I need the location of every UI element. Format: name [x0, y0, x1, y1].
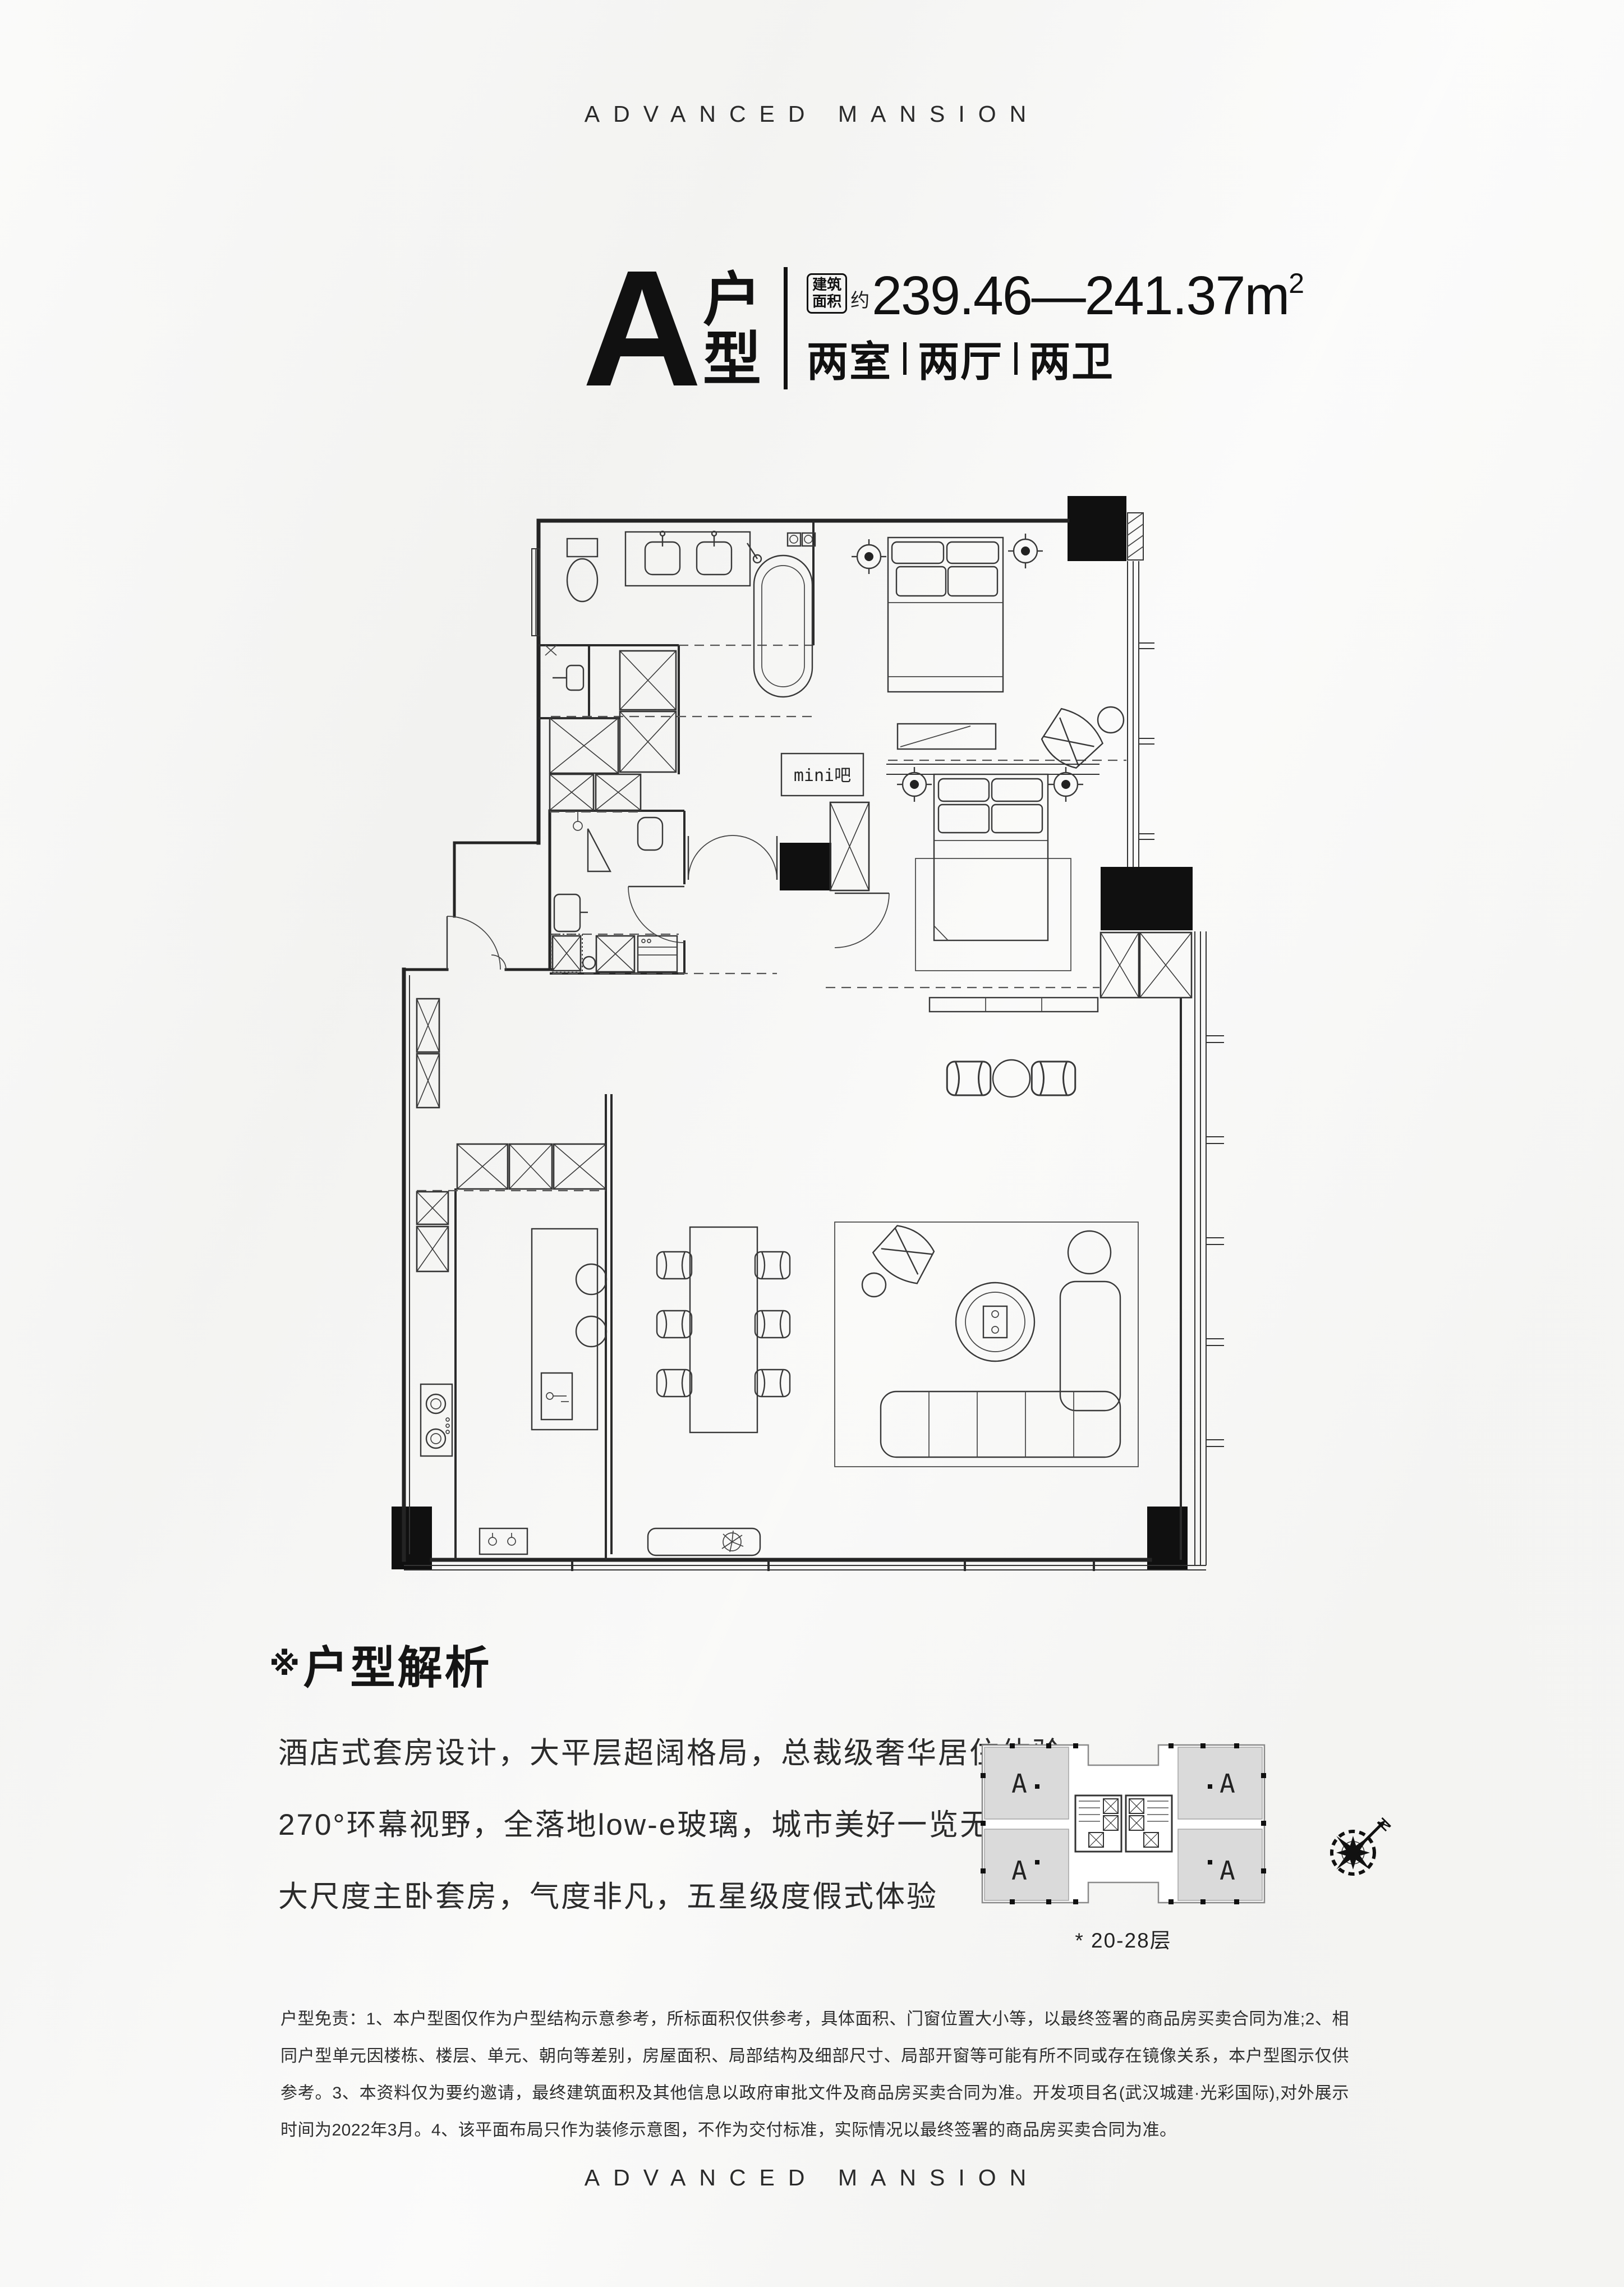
kitchen	[421, 1229, 606, 1554]
area-badge: 建筑 面积	[807, 273, 847, 314]
sofa	[881, 1282, 1120, 1457]
tea-table-set	[947, 1060, 1075, 1097]
keyplan-caption: * 20-28层	[979, 1923, 1268, 1954]
master-bedroom	[886, 764, 1099, 1097]
floor-plan: mini吧	[365, 477, 1262, 1571]
suite-double-door	[688, 835, 777, 880]
unit-word-char2: 型	[703, 330, 761, 389]
analysis-heading-text: 户型解析	[303, 1632, 491, 1697]
spec-rooms: 两室	[807, 328, 892, 388]
keyplan-unit-label: A	[1011, 1856, 1027, 1886]
disclaimer-text: 户型免责：1、本户型图仅作为户型结构示意参考，所标面积仅供参考，具体面积、门窗位…	[280, 2001, 1349, 2149]
compass-north-label: N	[1374, 1815, 1396, 1836]
side-table	[862, 1273, 886, 1297]
area-badge-line2: 面积	[812, 293, 841, 310]
compass-icon: N	[1324, 1812, 1397, 1885]
keyplan-unit-label: A	[1220, 1856, 1235, 1886]
area-approx: 约	[850, 285, 869, 313]
spec-baths: 两卫	[1029, 328, 1114, 388]
bathtub	[747, 543, 812, 697]
pouf	[1068, 1231, 1111, 1274]
keyplan: A A A A	[979, 1739, 1268, 1911]
wall-switch-boxes	[788, 533, 815, 546]
bathroom2	[551, 811, 677, 972]
interior-walls	[456, 521, 813, 1560]
armchair	[869, 1219, 941, 1289]
analysis-lines: 酒店式套房设计，大平层超阔格局，总裁级奢华居住体验 270°环幕视野，全落地lo…	[278, 1729, 1064, 1945]
unit-word-char1: 户	[703, 270, 761, 330]
bench	[898, 724, 996, 749]
title-block: A 户 型 建筑 面积 约 239.46—241.37m2 两室 两厅 两卫	[582, 264, 1303, 393]
island	[532, 1229, 606, 1430]
toilet	[567, 539, 597, 601]
entry-door	[447, 916, 506, 970]
analysis-line: 270°环幕视野，全落地low-e玻璃，城市美好一览无余	[278, 1801, 1064, 1844]
hatch-pane	[1128, 513, 1143, 560]
title-divider	[784, 267, 788, 389]
master-door	[835, 893, 889, 948]
keyplan-unit-label: A	[1220, 1769, 1235, 1799]
reference-mark-icon: ※	[269, 1646, 300, 1683]
minibar: mini吧	[781, 754, 863, 796]
master-bed	[934, 774, 1048, 940]
minibar-label: mini吧	[794, 766, 851, 786]
unit-word: 户 型	[703, 270, 761, 389]
columns	[392, 496, 1193, 1569]
analysis-heading: ※ 户型解析	[269, 1632, 491, 1697]
outer-walls	[404, 513, 1224, 1571]
cooktop	[421, 1384, 452, 1456]
analysis-line: 酒店式套房设计，大平层超阔格局，总裁级奢华居住体验	[278, 1729, 1064, 1772]
keyplan-unit-label: A	[1011, 1769, 1027, 1799]
dashed-lines	[417, 645, 1126, 1191]
spec-divider-icon	[903, 342, 907, 375]
dining-area	[657, 1227, 790, 1432]
bedroom1	[852, 534, 1124, 775]
brand-footer: ADVANCED MANSION	[0, 2165, 1624, 2191]
area-value: 239.46—241.37m2	[872, 268, 1303, 323]
wardrobes	[417, 651, 1191, 1271]
living-room	[835, 1219, 1138, 1467]
unit-letter: A	[582, 264, 698, 393]
double-vanity	[625, 531, 750, 586]
analysis-line: 大尺度主卧套房，气度非凡，五星级度假式体验	[278, 1873, 1064, 1916]
title-right: 建筑 面积 约 239.46—241.37m2 两室 两厅 两卫	[807, 268, 1303, 388]
spec-row: 两室 两厅 两卫	[807, 328, 1303, 388]
coffee-table	[956, 1283, 1034, 1361]
spec-halls: 两厅	[918, 328, 1003, 388]
spec-divider-icon	[1014, 342, 1018, 375]
area-row: 建筑 面积 约 239.46—241.37m2	[807, 268, 1303, 323]
area-superscript: 2	[1289, 268, 1303, 299]
area-badge-line1: 建筑	[812, 277, 841, 293]
bottom-sink	[480, 1528, 527, 1554]
shower-room-sink	[545, 645, 583, 690]
console	[930, 998, 1098, 1012]
side-table	[1098, 707, 1124, 733]
sill-plant	[648, 1528, 760, 1555]
brand-header: ADVANCED MANSION	[0, 101, 1624, 127]
